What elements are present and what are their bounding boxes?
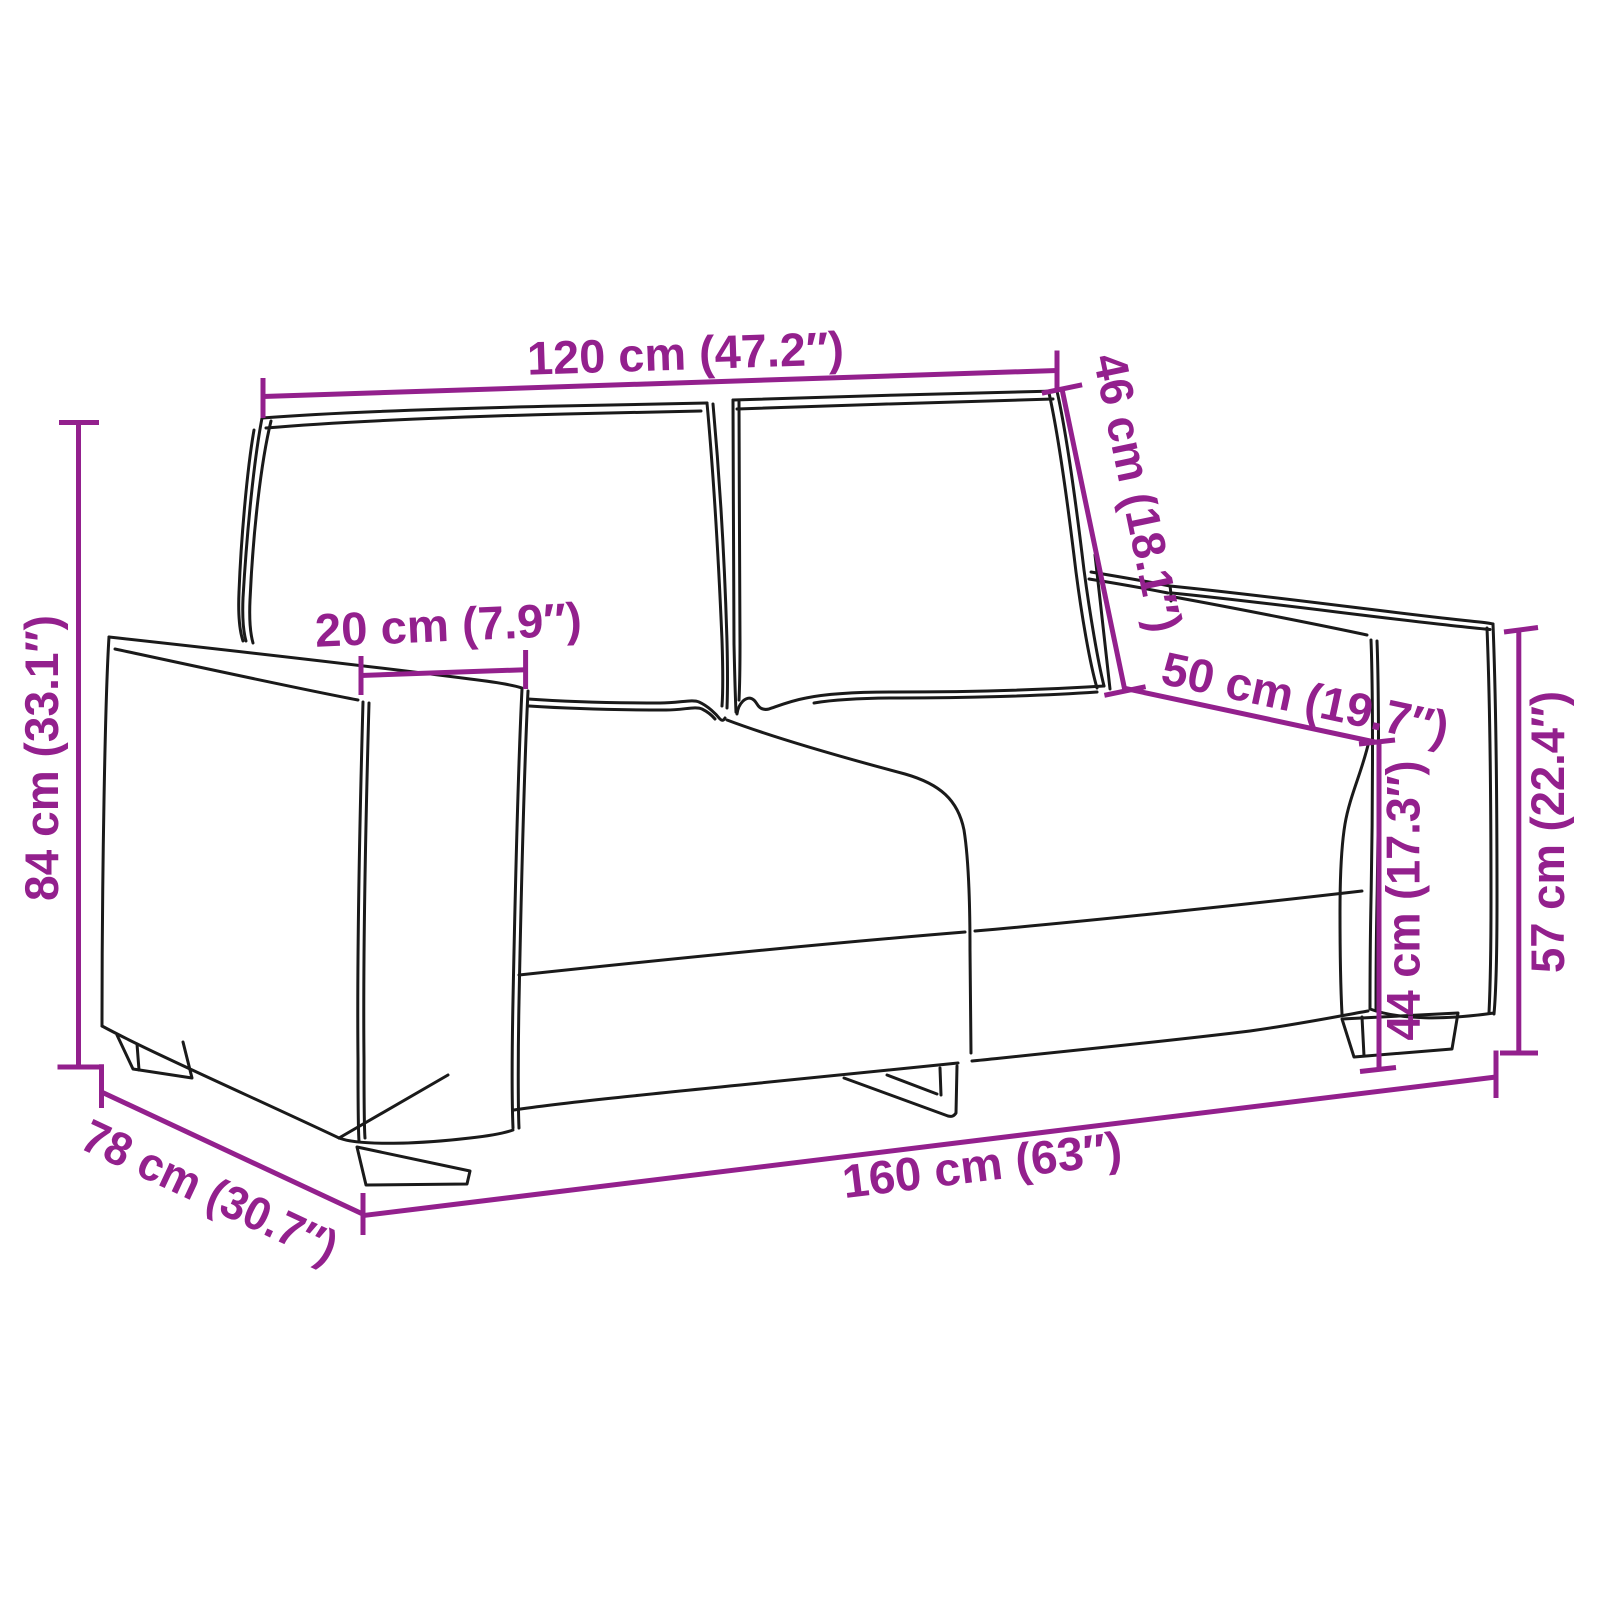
svg-text:44 cm (17.3″): 44 cm (17.3″)	[1377, 761, 1430, 1041]
svg-text:84 cm (33.1″): 84 cm (33.1″)	[15, 615, 68, 901]
svg-text:120 cm (47.2″): 120 cm (47.2″)	[526, 321, 845, 384]
svg-text:57 cm (22.4″): 57 cm (22.4″)	[1521, 691, 1574, 973]
